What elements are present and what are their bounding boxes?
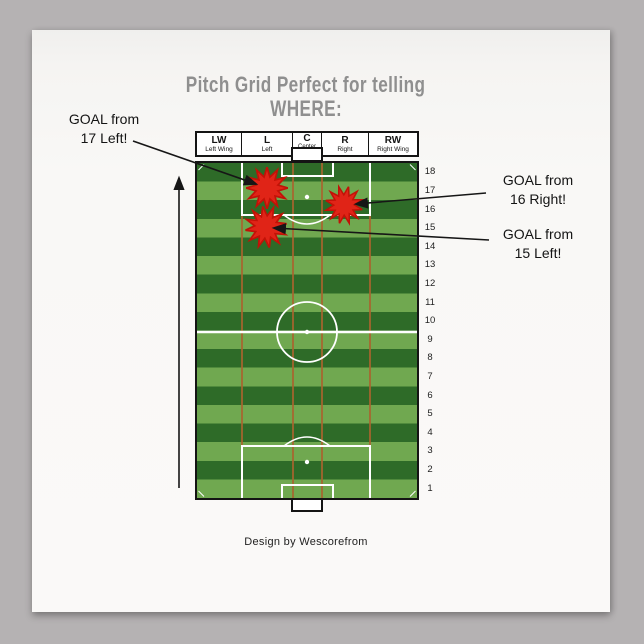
top-goal-area (282, 163, 333, 176)
column-abbr: L (242, 135, 292, 146)
callout-text: GOAL from (476, 171, 600, 190)
row-number: 16 (420, 205, 440, 215)
row-number-scale: 18 17 16 15 14 13 12 11 10 9 8 7 6 5 4 3… (420, 163, 440, 498)
row-number: 18 (420, 167, 440, 177)
corner-mark (410, 491, 416, 497)
row-number: 5 (420, 409, 440, 419)
row-number: 10 (420, 316, 440, 326)
bottom-goal-area (282, 485, 333, 498)
column-abbr: R (322, 135, 368, 146)
row-number: 14 (420, 242, 440, 252)
bottom-goal-box (291, 498, 323, 512)
top-penalty-spot (305, 195, 309, 199)
design-credit: Design by Wescorefrom (156, 536, 456, 548)
corner-mark (199, 165, 205, 171)
column-label: Left (242, 146, 292, 154)
column-abbr: RW (369, 135, 417, 146)
column-abbr: C (293, 134, 321, 143)
corner-mark (199, 491, 205, 497)
bottom-penalty-arc (284, 437, 330, 446)
poster-title-line1: Pitch Grid Perfect for telling (106, 72, 506, 98)
row-number: 2 (420, 465, 440, 475)
row-number: 7 (420, 372, 440, 382)
column-label: Right (322, 146, 368, 154)
row-number: 13 (420, 260, 440, 270)
corner-mark (410, 165, 416, 171)
pitch-field (195, 161, 419, 500)
bottom-penalty-spot (305, 460, 309, 464)
callout-text: 16 Right! (476, 190, 600, 209)
row-number: 3 (420, 446, 440, 456)
row-number: 17 (420, 186, 440, 196)
row-number: 9 (420, 335, 440, 345)
callout-goal-15-left: GOAL from 15 Left! (476, 225, 600, 263)
column-label: Right Wing (369, 146, 417, 154)
row-number: 11 (420, 298, 440, 308)
column-label: Left Wing (197, 146, 241, 154)
row-number: 1 (420, 484, 440, 494)
row-number: 15 (420, 223, 440, 233)
spots (305, 195, 309, 464)
pitch-markings (197, 163, 417, 498)
page-background: Pitch Grid Perfect for telling WHERE: GO… (0, 0, 644, 644)
column-abbr: LW (197, 135, 241, 146)
row-number: 4 (420, 428, 440, 438)
column-header-right-wing: RW Right Wing (369, 133, 417, 155)
center-spot (305, 330, 309, 334)
callout-text: GOAL from (36, 110, 172, 129)
callout-goal-17-left: GOAL from 17 Left! (36, 110, 172, 148)
goal-star-15-left (242, 203, 290, 251)
row-number: 8 (420, 353, 440, 363)
column-header-right: R Right (322, 133, 369, 155)
column-header-left-wing: LW Left Wing (197, 133, 242, 155)
top-goal-box (291, 147, 323, 162)
callout-text: GOAL from (476, 225, 600, 244)
bottom-penalty-area (242, 446, 370, 498)
row-number: 12 (420, 279, 440, 289)
callout-goal-16-right: GOAL from 16 Right! (476, 171, 600, 209)
row-number: 6 (420, 391, 440, 401)
callout-text: 17 Left! (36, 129, 172, 148)
callout-text: 15 Left! (476, 244, 600, 263)
column-header-left: L Left (242, 133, 293, 155)
